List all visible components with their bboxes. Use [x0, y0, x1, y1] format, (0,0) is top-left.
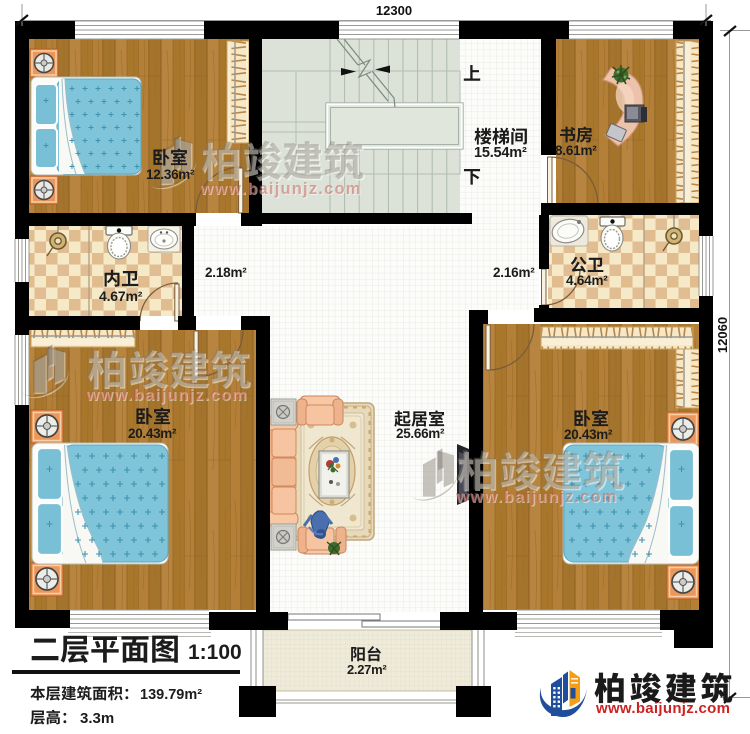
svg-text:1:100: 1:100	[188, 641, 242, 664]
svg-text:4.67m²: 4.67m²	[99, 288, 143, 304]
svg-text:www.baijunjz.com: www.baijunjz.com	[595, 700, 730, 717]
svg-text:www.baijunjz.com: www.baijunjz.com	[455, 488, 618, 506]
svg-text:2.16m²: 2.16m²	[493, 265, 535, 280]
svg-text:4.64m²: 4.64m²	[566, 273, 608, 288]
svg-text:20.43m²: 20.43m²	[128, 426, 177, 441]
svg-text:12060: 12060	[715, 317, 730, 353]
svg-text:3.3m: 3.3m	[80, 710, 114, 727]
svg-text:15.54m²: 15.54m²	[474, 145, 527, 161]
svg-text:www.baijunjz.com: www.baijunjz.com	[199, 180, 362, 198]
svg-text:2.18m²: 2.18m²	[205, 265, 247, 280]
svg-text:2.27m²: 2.27m²	[347, 662, 387, 677]
svg-text:www.baijunjz.com: www.baijunjz.com	[85, 386, 248, 404]
svg-text:8.61m²: 8.61m²	[555, 143, 597, 158]
svg-text:25.66m²: 25.66m²	[396, 426, 445, 441]
svg-text:20.43m²: 20.43m²	[564, 427, 613, 442]
svg-text:139.79m²: 139.79m²	[140, 687, 202, 703]
svg-text:12300: 12300	[376, 3, 412, 18]
svg-text:12.36m²: 12.36m²	[146, 167, 195, 182]
